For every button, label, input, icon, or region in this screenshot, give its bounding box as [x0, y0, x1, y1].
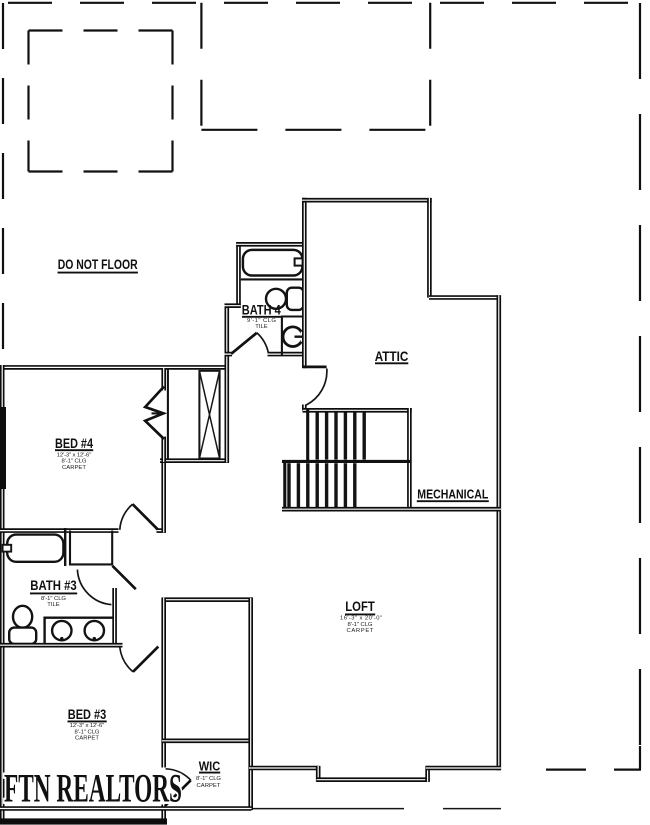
svg-text:8'-1" CLG: 8'-1" CLG — [196, 776, 221, 782]
svg-text:8'-1" CLG: 8'-1" CLG — [75, 729, 100, 735]
svg-text:TILE: TILE — [47, 602, 60, 608]
svg-text:FTN REALTORS: FTN REALTORS — [4, 766, 182, 811]
svg-text:CARPET: CARPET — [347, 628, 374, 634]
svg-text:BED #3: BED #3 — [68, 707, 107, 722]
svg-text:LOFT: LOFT — [345, 599, 375, 614]
svg-text:12'-3" x 12'-6": 12'-3" x 12'-6" — [70, 723, 105, 729]
svg-text:8'-1" CLG: 8'-1" CLG — [348, 622, 373, 628]
svg-text:CARPET: CARPET — [197, 783, 221, 789]
svg-text:8'-1" CLG: 8'-1" CLG — [62, 459, 87, 465]
svg-text:ATTIC: ATTIC — [375, 349, 409, 364]
svg-text:8'-1" CLG: 8'-1" CLG — [41, 596, 66, 602]
svg-text:BED #4: BED #4 — [55, 436, 93, 451]
svg-text:BATH 4: BATH 4 — [242, 302, 281, 317]
svg-text:TILE: TILE — [255, 324, 268, 330]
svg-text:BATH #3: BATH #3 — [30, 578, 77, 593]
svg-text:16'-3" x 20'-0": 16'-3" x 20'-0" — [340, 616, 382, 622]
svg-text:12'-3" x 12'-6": 12'-3" x 12'-6" — [57, 452, 92, 458]
svg-text:MECHANICAL: MECHANICAL — [417, 487, 488, 501]
svg-text:CARPET: CARPET — [75, 736, 99, 742]
svg-text:DO NOT FLOOR: DO NOT FLOOR — [58, 257, 138, 272]
svg-text:CARPET: CARPET — [62, 465, 86, 471]
svg-text:WIC: WIC — [199, 759, 221, 773]
